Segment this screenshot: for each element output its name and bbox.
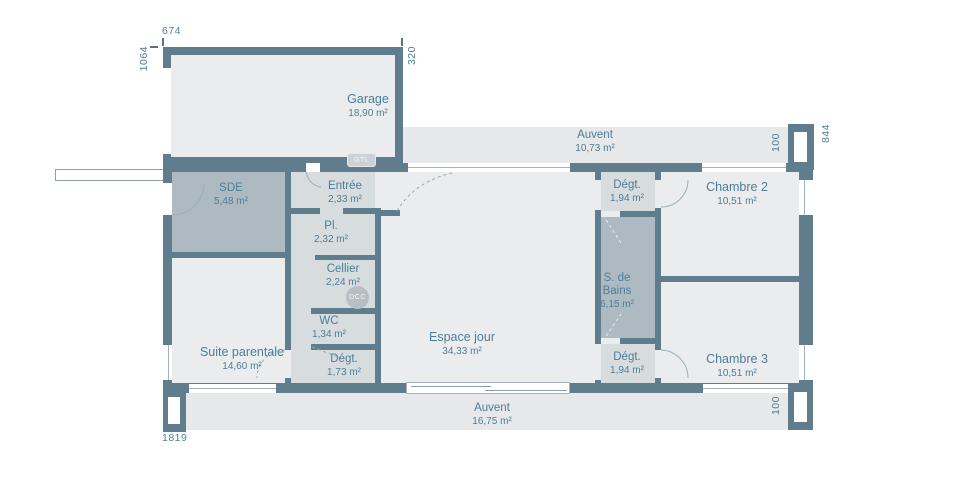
- room-label-degt-ne: Dégt. 1,94 m²: [591, 178, 663, 205]
- room-label-garage: Garage 18,90 m²: [336, 92, 400, 120]
- dim-pillar-top: 100: [770, 133, 782, 152]
- wall-segment: [655, 378, 661, 383]
- window-pane-line: [411, 386, 491, 387]
- dim-tick: [401, 38, 403, 46]
- wall-segment: [311, 344, 375, 350]
- window: [189, 384, 276, 393]
- pillar-window: [168, 397, 180, 424]
- room-label-chambre3: Chambre 3 10,51 m²: [686, 352, 788, 380]
- garage-door: [163, 68, 171, 154]
- floor-plan: 674 1064 320 844 100 100 1819: [0, 0, 960, 488]
- wall-segment: [311, 308, 375, 314]
- door-opening: [306, 163, 320, 172]
- room-label-sde: SDE 5,48 m²: [195, 181, 267, 208]
- room-label-placard: Pl. 2,32 m²: [300, 219, 362, 246]
- sliding-bay-window: [406, 382, 570, 394]
- window: [702, 163, 786, 172]
- room-label-cellier: Cellier 2,24 m²: [311, 262, 375, 289]
- room-label-salle-de-bains: S. de Bains 6,15 m²: [594, 272, 640, 311]
- gtl-badge: GTL: [347, 153, 376, 167]
- window: [703, 384, 788, 393]
- room-label-espace-jour: Espace jour 34,33 m²: [410, 330, 514, 358]
- dim-tick: [162, 38, 164, 46]
- dim-bottom: 1819: [162, 432, 187, 444]
- dim-pillar-bottom: 100: [770, 396, 782, 415]
- window: [799, 180, 813, 215]
- dim-garage-right: 320: [406, 46, 418, 65]
- room-label-degt-se: Dégt. 1,94 m²: [591, 350, 663, 377]
- wall-segment: [315, 255, 375, 260]
- room-label-auvent-bottom: Auvent 16,75 m²: [442, 401, 542, 428]
- window: [163, 345, 172, 380]
- room-label-degt-sw: Dégt. 1,73 m²: [308, 352, 380, 379]
- wall-segment: [287, 208, 320, 214]
- room-label-entree: Entrée 2,33 m²: [304, 179, 386, 206]
- dim-tick: [150, 46, 158, 48]
- wall-segment: [595, 380, 601, 383]
- room-label-chambre2: Chambre 2 10,51 m²: [686, 180, 788, 208]
- room-label-wc: WC 1,34 m²: [303, 315, 355, 340]
- dcc-badge: DCC: [346, 286, 369, 309]
- wall-segment: [285, 378, 291, 383]
- wall-segment: [172, 252, 285, 258]
- wall-segment: [285, 172, 291, 350]
- dim-right: 844: [820, 124, 832, 143]
- pillar-window: [794, 132, 807, 162]
- pillar-window: [794, 392, 807, 422]
- wall-segment: [620, 338, 655, 344]
- door-opening: [163, 183, 172, 215]
- window: [408, 163, 570, 172]
- window-pane-line: [485, 390, 567, 391]
- room-label-suite-parentale: Suite parentale 14,60 m²: [181, 345, 303, 373]
- dim-top: 674: [162, 25, 181, 37]
- fence-wall: [55, 169, 168, 181]
- wall-segment: [661, 276, 799, 282]
- window: [799, 345, 813, 380]
- room-label-auvent-top: Auvent 10,73 m²: [545, 128, 645, 155]
- wall-segment: [620, 211, 655, 217]
- dim-left: 1064: [138, 46, 150, 71]
